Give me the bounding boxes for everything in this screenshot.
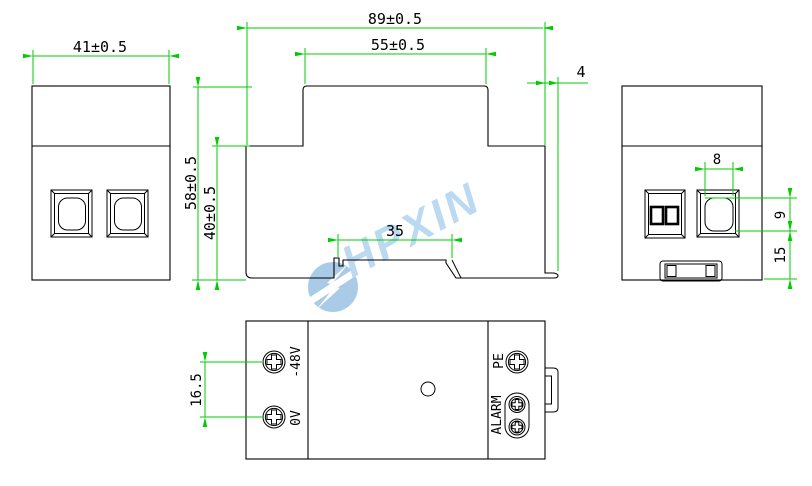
- front-window1-button: [59, 198, 86, 230]
- rear-window-frame: [701, 194, 736, 234]
- bottom-view: -48V 0V PE ALARM: [246, 321, 558, 459]
- label-pe: PE: [492, 353, 507, 369]
- bottom-outline: [246, 321, 545, 459]
- watermark: HPXIN: [300, 173, 489, 312]
- dim-text-top-width: 55±0.5: [371, 36, 425, 54]
- dim-text-body-height: 40±0.5: [201, 186, 219, 240]
- rear-window-button: [705, 198, 733, 231]
- rear-connector-pin1: [651, 207, 663, 224]
- rear-outline: [622, 86, 762, 280]
- rear-connector-pin2: [666, 207, 678, 224]
- dim-text-front-width: 41±0.5: [73, 38, 127, 56]
- rear-clip-latch-right: [706, 266, 715, 277]
- front-outline: [32, 86, 170, 280]
- terminal-screw-neg48: [263, 351, 285, 373]
- dim-text-window-height: 9: [773, 211, 789, 219]
- dim-text-clip-protrusion: 4: [576, 63, 585, 81]
- dim-text-overall-height: 58±0.5: [182, 156, 200, 210]
- dim-text-rail-slot: 35: [386, 222, 404, 240]
- bottom-side-tab-notch: [545, 376, 552, 404]
- terminal-alarm-block: [505, 393, 529, 438]
- terminal-screw-0v: [263, 406, 285, 428]
- label-alarm: ALARM: [490, 395, 505, 434]
- label-neg48: -48V: [289, 346, 304, 377]
- terminal-screw-pe: [506, 351, 528, 373]
- front-window2-button: [115, 198, 142, 230]
- dim-text-overall-width: 89±0.5: [368, 10, 422, 28]
- rear-clip-latch-left: [667, 266, 676, 277]
- dim-text-window-bottom-offset: 15: [773, 247, 789, 264]
- watermark-text: HPXIN: [334, 173, 489, 286]
- dim-text-window-width: 8: [713, 152, 721, 168]
- drawing-canvas: HPXIN: [0, 0, 812, 486]
- rear-clip-inner: [665, 264, 717, 278]
- bottom-center-hole: [421, 382, 435, 396]
- rear-view: [622, 86, 762, 281]
- technical-drawing: HPXIN: [0, 0, 812, 486]
- label-0v: 0V: [289, 410, 304, 426]
- dim-text-terminal-spacing: 16.5: [189, 373, 205, 407]
- side-clip-finger-detail: [452, 260, 461, 278]
- front-view: [32, 86, 170, 280]
